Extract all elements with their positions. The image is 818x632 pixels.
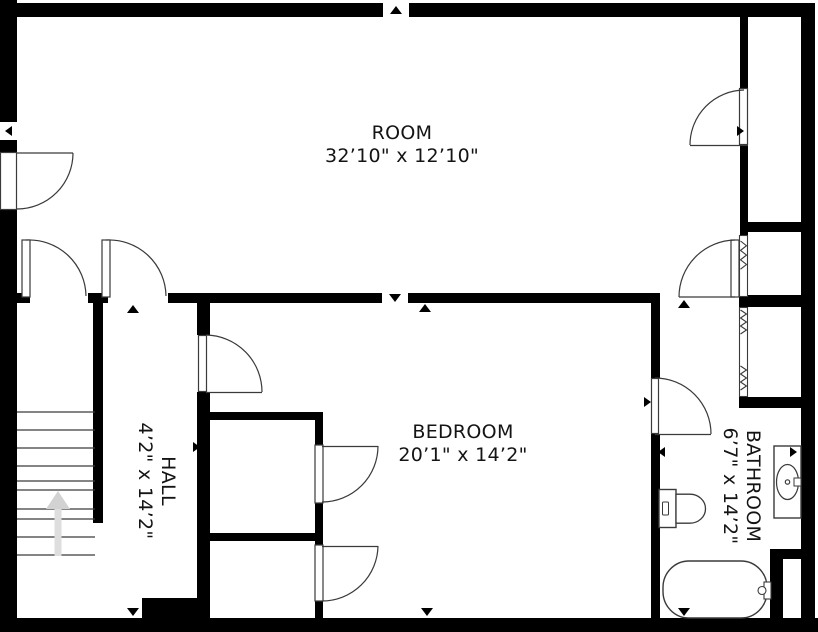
room-name: ROOM [292, 122, 512, 145]
toilet-icon [659, 490, 706, 528]
bathroom-dimensions: 6’7" x 14’2" [718, 421, 741, 551]
marker-room-left-icon [5, 126, 12, 136]
marker-hall-left-icon [95, 442, 102, 452]
door-arc-hall [206, 335, 262, 392]
marker-bedroom-bottom-icon [421, 608, 433, 616]
marker-hall-top-icon [127, 305, 139, 313]
door-arc-vestibule [679, 240, 735, 297]
symbol-layer [0, 0, 818, 632]
door-arc-room-right [690, 90, 744, 145]
room-label: ROOM 32’10" x 12’10" [292, 122, 512, 168]
door-arc-closet2 [322, 546, 378, 601]
door-leaf-room-b [102, 240, 110, 297]
door-leaf-vestibule [731, 240, 739, 297]
bedroom-dimensions: 20’1" x 14’2" [353, 444, 573, 467]
door-leaf-room-a [22, 240, 30, 297]
marker-bedroom-top-icon [419, 304, 431, 312]
marker-bathroom-bottom-icon [678, 608, 690, 616]
marker-bedroom-right-icon [644, 397, 651, 407]
bathroom-name: BATHROOM [741, 421, 764, 551]
bedroom-label: BEDROOM 20’1" x 14’2" [353, 421, 573, 467]
room-dimensions: 32’10" x 12’10" [292, 145, 512, 168]
door-arc-room-left [17, 153, 73, 209]
door-leaf-closet1 [315, 445, 323, 503]
marker-bathroom-right-icon [790, 447, 797, 457]
marker-hall-right-icon [193, 442, 200, 452]
hall-dimensions: 4’2" x 14’2" [133, 416, 156, 546]
stairs-direction-arrow-icon [46, 491, 70, 556]
marker-room-right-icon [737, 126, 744, 136]
bifold-door-icon [740, 236, 748, 397]
door-arc-room-a [26, 240, 86, 296]
hall-name: HALL [156, 416, 179, 546]
bathroom-label: BATHROOM 6’7" x 14’2" [718, 421, 764, 551]
hall-label: HALL 4’2" x 14’2" [133, 416, 179, 546]
marker-room-bottom-icon [389, 294, 401, 302]
door-leaf-closet2 [315, 545, 323, 601]
bedroom-name: BEDROOM [353, 421, 573, 444]
marker-bedroom-left-icon [203, 397, 210, 407]
door-arc-room-b [106, 240, 166, 296]
marker-bathroom-top-icon [678, 300, 690, 308]
door-arc-bathroom [655, 378, 711, 434]
marker-bathroom-left-icon [658, 447, 665, 457]
door-leaf-room-right [740, 89, 748, 145]
door-leaf-bathroom [652, 379, 659, 434]
marker-room-top-icon [390, 6, 402, 14]
marker-hall-bottom-icon [127, 608, 139, 616]
door-leaf-hall [199, 336, 207, 392]
door-opening-room-left [1, 153, 17, 210]
floor-plan: ROOM 32’10" x 12’10" BEDROOM 20’1" x 14’… [0, 0, 818, 632]
